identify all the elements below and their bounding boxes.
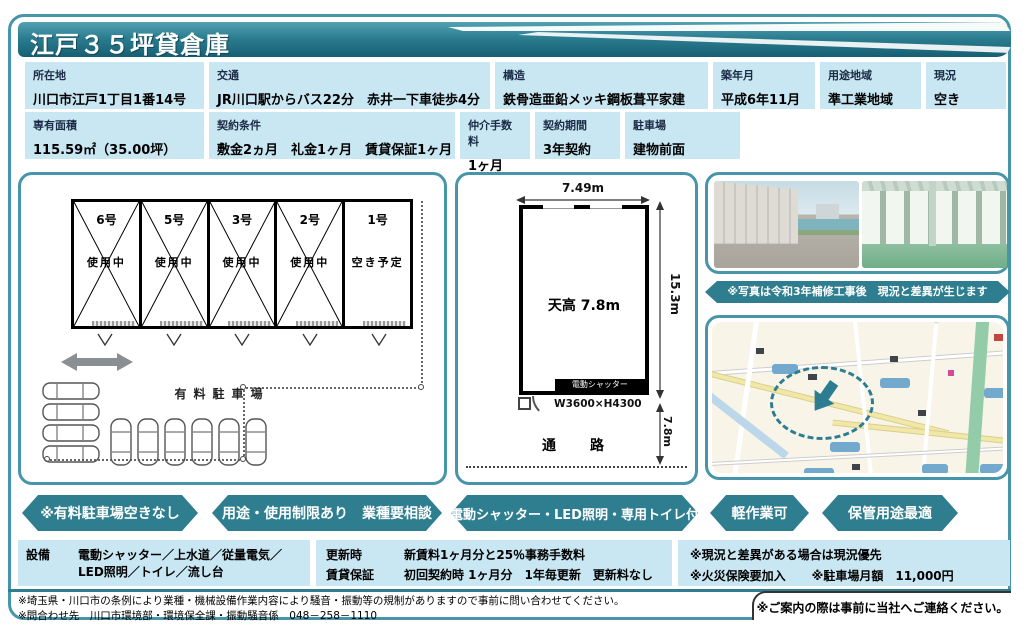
car-icon	[163, 417, 187, 467]
paid-parking-label: 有料駐車場	[147, 385, 297, 402]
warehouse-units: 6号 使用中 5号 使用中 3号 使用中	[71, 199, 413, 329]
map-landmark	[948, 370, 954, 376]
label-address: 所在地	[33, 67, 196, 83]
car-icon	[41, 444, 101, 464]
shutter-mark	[92, 321, 135, 326]
title-bar: 江戸３５坪貸倉庫	[18, 22, 1011, 57]
unit-status: 使用中	[74, 254, 139, 270]
photo-interior-floor	[862, 244, 1007, 268]
car-icon	[41, 402, 101, 422]
car-icon	[41, 381, 101, 401]
unit-number: 2号	[277, 211, 342, 228]
label-zoning: 用途地域	[828, 67, 913, 83]
ceiling-height-label: 天高 7.8m	[523, 295, 645, 315]
footer-line1: ※埼玉県・川口市の条例により業種・機械設備作業内容により騒音・振動等の規制があり…	[18, 594, 625, 609]
value-period: 3年契約	[543, 139, 612, 158]
unit-number: 6号	[74, 211, 139, 228]
label-area: 専有面積	[33, 117, 196, 133]
unit-5: 5号 使用中	[139, 199, 210, 329]
value-built: 平成6年11月	[721, 89, 807, 108]
car-icon	[190, 417, 214, 467]
car-icon	[217, 417, 241, 467]
width-dimension: 7.49m	[518, 181, 648, 195]
page-title: 江戸３５坪貸倉庫	[30, 25, 230, 57]
door-chevron-icon	[276, 331, 344, 350]
photo-exterior-building	[714, 181, 798, 244]
door-chevron-icon	[208, 331, 276, 350]
unit-outline: 天高 7.8m 電動シャッター	[519, 205, 649, 395]
unit-2: 2号 使用中	[274, 199, 345, 329]
shutter-mark	[363, 321, 406, 326]
cell-built: 築年月 平成6年11月	[713, 62, 815, 109]
footer-line2: ※問合わせ先 川口市環境部・環境保全課・振動騒音係 048－258－1110	[18, 609, 625, 624]
parked-cars-row	[109, 417, 268, 467]
label-terms: 契約条件	[217, 117, 447, 133]
unit-plan-panel: 7.49m 天高 7.8m 電動シャッター W3600×H4300 15.3m …	[455, 172, 698, 485]
renewal-value: 新賃料1ヶ月分と25％事務手数料	[404, 546, 585, 563]
cell-parking: 駐車場 建物前面	[625, 112, 740, 159]
map-building	[890, 356, 898, 362]
photo-exterior-fence	[798, 219, 859, 229]
guarantee-value: 初回契約時 1ヶ月分 1年毎更新 更新料なし	[404, 566, 653, 583]
shutter-mark	[228, 321, 271, 326]
cell-access: 交通 JR川口駅からバス22分 赤井一下車徒歩4分	[209, 62, 490, 109]
note-parking-fee: ※駐車場月額 11,000円	[812, 567, 954, 584]
cell-terms: 契約条件 敷金2ヵ月 礼金1ヶ月 賃貸保証1ヶ月	[209, 112, 455, 159]
footer-contact-note: ※ご案内の際は事前に当社へご連絡ください。	[752, 591, 1011, 620]
map-route-chip	[984, 388, 1003, 398]
shutter-mark	[296, 321, 339, 326]
cell-zoning: 用途地域 準工業地域	[820, 62, 921, 109]
equipment-line2: LED照明／トイレ／流し台	[78, 563, 282, 580]
map-route-chip	[922, 464, 948, 473]
road-label: 通 路	[498, 435, 658, 455]
boundary-dotted-line	[421, 201, 423, 387]
road-dotted-line	[466, 466, 687, 468]
notes-box: ※現況と差異がある場合は現況優先 ※火災保険要加入 ※駐車場月額 11,000円	[678, 540, 1010, 586]
door-swing-arc	[532, 396, 554, 418]
map-route-chip	[804, 468, 834, 473]
photo-interior-beam	[929, 181, 936, 246]
guarantee-label: 賃貸保証	[326, 566, 404, 583]
label-access: 交通	[217, 67, 482, 83]
label-parking: 駐車場	[633, 117, 732, 133]
photo-exterior-hedge	[798, 230, 859, 235]
banner-no-parking: ※有料駐車場空きなし	[22, 495, 198, 531]
banner-storage: 保管用途最適	[822, 495, 958, 531]
door-chevron-icon	[139, 331, 207, 350]
note-current-priority: ※現況と差異がある場合は現況優先	[690, 546, 998, 563]
toilet-box	[518, 397, 531, 410]
equipment-line1: 電動シャッター／上水道／従量電気／	[78, 546, 282, 563]
cell-status: 現況 空き	[926, 62, 1006, 109]
cell-address: 所在地 川口市江戸1丁目1番14号	[25, 62, 204, 109]
cell-area: 専有面積 115.59㎡（35.00坪）	[25, 112, 204, 159]
banner-light-work: 軽作業可	[710, 495, 809, 531]
note-fire-insurance: ※火災保険要加入	[690, 567, 786, 584]
value-parking: 建物前面	[633, 139, 732, 158]
equipment-box: 設備 電動シャッター／上水道／従量電気／ LED照明／トイレ／流し台	[18, 540, 310, 586]
value-access: JR川口駅からバス22分 赤井一下車徒歩4分	[217, 89, 482, 108]
renewal-label: 更新時	[326, 546, 404, 563]
cell-structure: 構造 鉄骨造亜鉛メッキ鋼板葺平家建	[495, 62, 708, 109]
unit-6: 6号 使用中	[71, 199, 142, 329]
value-terms: 敷金2ヵ月 礼金1ヶ月 賃貸保証1ヶ月	[217, 139, 447, 158]
unit-status: 使用中	[277, 254, 342, 270]
flyer-page: 江戸３５坪貸倉庫 所在地 川口市江戸1丁目1番14号 交通 JR川口駅からバス2…	[0, 0, 1031, 626]
unit-status: 空き予定	[345, 254, 410, 270]
location-arrow-icon	[804, 378, 846, 420]
photo-exterior-far-building	[816, 204, 839, 220]
map-route-chip	[980, 464, 1003, 473]
location-map	[712, 322, 1003, 473]
label-status: 現況	[934, 67, 998, 83]
parked-cars-column	[41, 381, 101, 464]
boundary-node	[418, 384, 424, 390]
door-marks	[71, 331, 413, 350]
car-icon	[136, 417, 160, 467]
unit-3: 3号 使用中	[207, 199, 278, 329]
cell-fee: 仲介手数料 1ヶ月	[460, 112, 530, 159]
photos-panel	[705, 172, 1010, 274]
unit-status: 使用中	[142, 254, 207, 270]
map-route-chip	[880, 378, 910, 388]
value-zoning: 準工業地域	[828, 89, 913, 108]
car-icon	[109, 417, 133, 467]
banner-facilities: 電動シャッター・LED照明・専用トイレ付	[451, 495, 698, 531]
dimension-arrow-icon	[655, 201, 665, 399]
value-status: 空き	[934, 89, 998, 108]
shutter-size-label: W3600×H4300	[554, 398, 642, 410]
double-arrow-icon	[61, 351, 133, 373]
map-building	[918, 410, 926, 416]
equipment-label: 設備	[26, 546, 78, 580]
map-landmark	[994, 334, 1003, 341]
door-chevron-icon	[345, 331, 413, 350]
car-icon	[41, 423, 101, 443]
value-address: 川口市江戸1丁目1番14号	[33, 89, 196, 108]
cell-period: 契約期間 3年契約	[535, 112, 620, 159]
map-route-chip	[830, 442, 860, 452]
depth-dimension: 15.3m	[668, 273, 682, 315]
photo-exterior	[714, 181, 859, 268]
map-panel	[705, 315, 1010, 480]
unit-number: 1号	[345, 211, 410, 228]
unit-number: 3号	[210, 211, 275, 228]
map-road	[727, 322, 761, 473]
photo-note-banner: ※写真は令和3年補修工事後 現況と差異が生じます	[705, 281, 1010, 303]
label-fee: 仲介手数料	[468, 117, 522, 149]
electric-shutter-label: 電動シャッター	[555, 379, 645, 391]
shutter-notch	[543, 205, 575, 209]
shutter-notch	[590, 205, 622, 209]
map-building	[852, 464, 860, 470]
value-structure: 鉄骨造亜鉛メッキ鋼板葺平家建	[503, 89, 700, 108]
door-chevron-icon	[71, 331, 139, 350]
banner-use-restriction: 用途・使用制限あり 業種要相談	[212, 495, 442, 531]
front-distance-dimension: 7.8m	[661, 416, 674, 447]
site-plan-panel: 6号 使用中 5号 使用中 3号 使用中	[18, 172, 447, 485]
footer-regulation-notes: ※埼玉県・川口市の条例により業種・機械設備作業内容により騒音・振動等の規制があり…	[18, 594, 625, 624]
dimension-arrow-icon	[516, 195, 650, 205]
map-building	[756, 348, 764, 354]
unit-1: 1号 空き予定	[342, 199, 413, 329]
unit-number: 5号	[142, 211, 207, 228]
label-period: 契約期間	[543, 117, 612, 133]
label-built: 築年月	[721, 67, 807, 83]
renewal-box: 更新時 新賃料1ヶ月分と25％事務手数料 賃貸保証 初回契約時 1ヶ月分 1年毎…	[316, 540, 672, 586]
shutter-mark	[160, 321, 203, 326]
value-area: 115.59㎡（35.00坪）	[33, 139, 196, 158]
photo-interior	[862, 181, 1007, 268]
label-structure: 構造	[503, 67, 700, 83]
unit-status: 使用中	[210, 254, 275, 270]
car-icon	[244, 417, 268, 467]
